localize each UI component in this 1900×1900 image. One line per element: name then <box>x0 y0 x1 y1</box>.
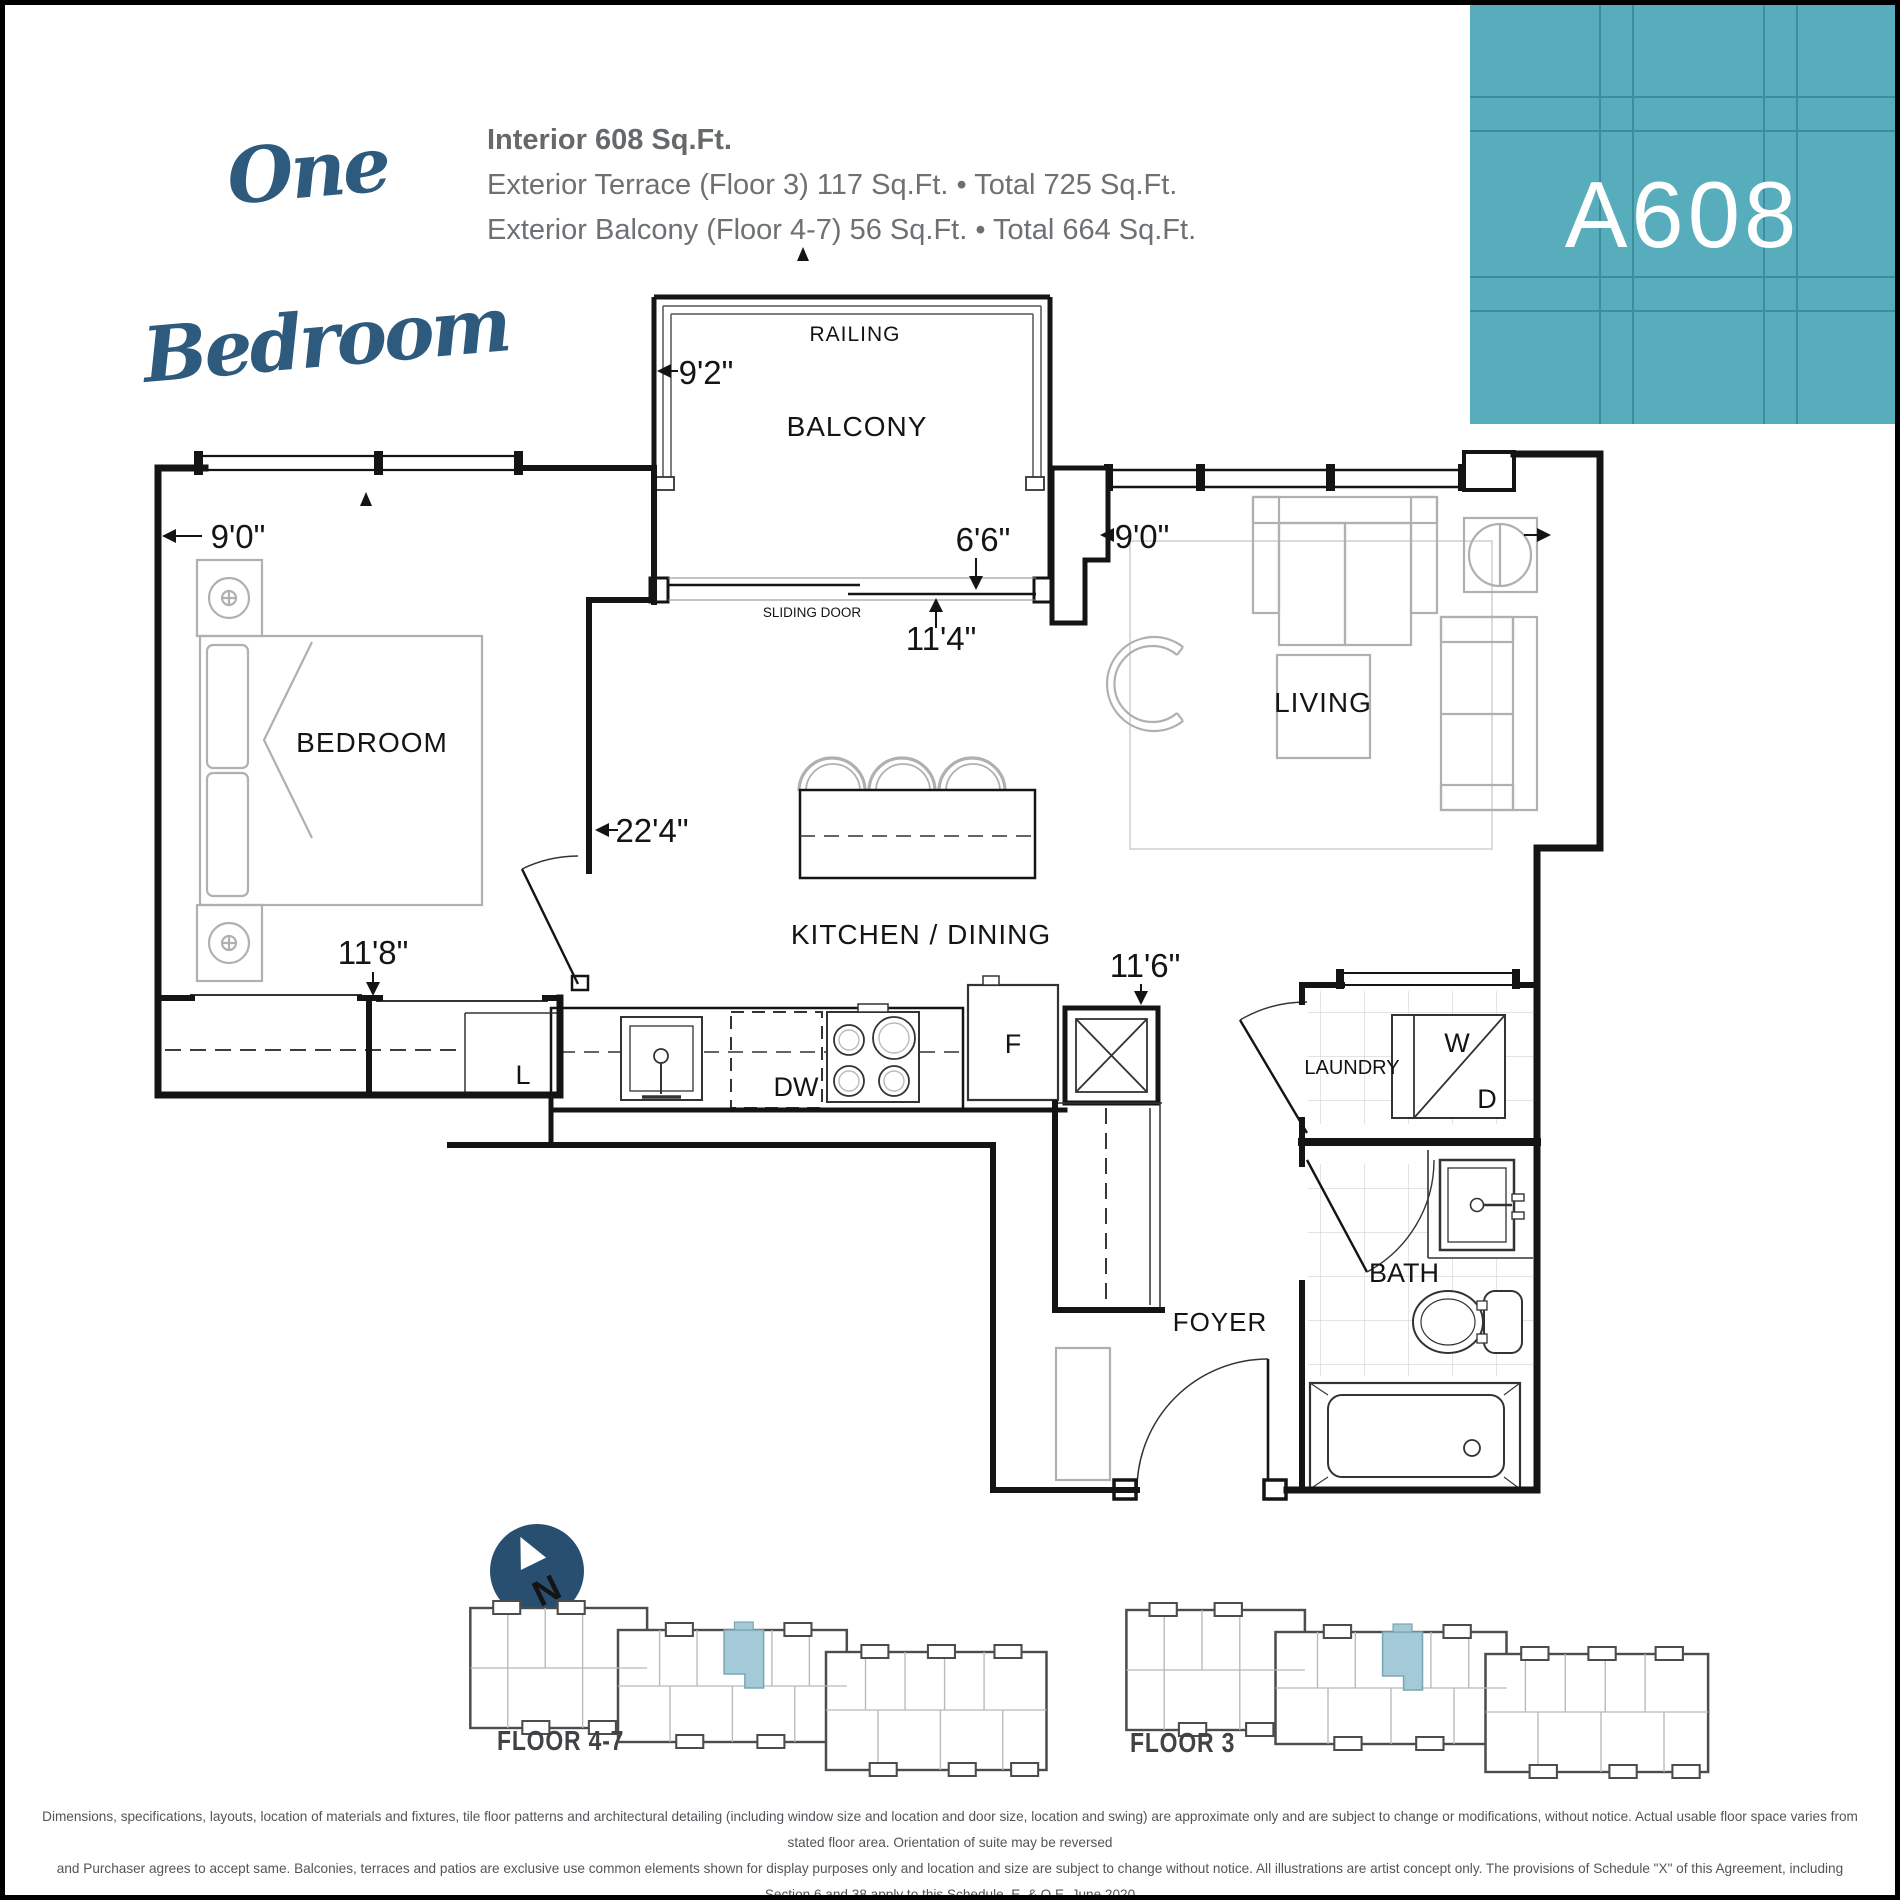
island-stools <box>799 758 1005 791</box>
dim-bedroom-depth: 11'8" <box>338 934 409 996</box>
dim-terrace-door: 6'6" <box>956 521 1011 590</box>
railing-label: RAILING <box>809 323 900 346</box>
dimensions: 9'2" 9'0" 6'6" 11'4" 9'0" 22'4" <box>162 354 1551 1005</box>
bathtub <box>1310 1383 1520 1489</box>
linen-closet-label: L <box>515 1060 530 1090</box>
dim-balcony-depth: 9'2" <box>657 354 733 391</box>
floorplan-page: One Bedroom Interior 608 Sq.Ft. Exterior… <box>0 0 1900 1900</box>
kitchen-island <box>800 790 1035 878</box>
dim-bedroom-width: 9'0" <box>162 518 265 555</box>
sliding-door-label: SLIDING DOOR <box>763 605 862 620</box>
bedroom-label: BEDROOM <box>296 727 448 758</box>
toilet <box>1413 1291 1522 1353</box>
sofa <box>1253 497 1437 523</box>
svg-text:9'0": 9'0" <box>211 518 266 555</box>
living-furniture <box>1107 497 1537 810</box>
windows <box>194 451 1520 989</box>
bedroom-closets <box>165 995 560 1095</box>
floor-3-label: FLOOR 3 <box>1130 1728 1235 1759</box>
living-label: LIVING <box>1274 687 1372 718</box>
svg-text:9'2": 9'2" <box>679 354 734 391</box>
svg-text:9'0": 9'0" <box>1115 518 1170 555</box>
dim-foyer-width: 11'6" <box>1110 947 1181 1005</box>
cooktop <box>827 1012 919 1102</box>
key-plan-floor-3: FLOOR 3 <box>1126 1603 1708 1778</box>
doors <box>522 856 1434 1499</box>
svg-text:11'4": 11'4" <box>906 620 977 657</box>
bedroom-door <box>522 856 588 990</box>
floor-plan-drawing: 9'2" 9'0" 6'6" 11'4" 9'0" 22'4" <box>0 0 1900 1900</box>
entry-door <box>1114 1359 1286 1499</box>
foyer-label: FOYER <box>1173 1307 1268 1337</box>
laundry-door <box>1240 1002 1307 1133</box>
svg-text:6'6": 6'6" <box>956 521 1011 558</box>
svg-text:22'4": 22'4" <box>615 812 688 849</box>
dishwasher-label: DW <box>774 1072 819 1102</box>
foyer-bench <box>1056 1348 1110 1480</box>
floor-4-7-label: FLOOR 4-7 <box>497 1726 624 1757</box>
armchair <box>1107 637 1183 731</box>
dim-suite-depth: 22'4" <box>595 812 689 849</box>
bedroom-furniture <box>197 560 482 981</box>
foyer-elements <box>1055 1103 1162 1480</box>
svg-text:11'6": 11'6" <box>1110 947 1181 984</box>
svg-text:11'8": 11'8" <box>338 934 409 971</box>
dryer-label: D <box>1477 1084 1497 1114</box>
laundry-label: LAUNDRY <box>1304 1057 1399 1079</box>
key-plan-floor-4-7: FLOOR 4-7 <box>470 1601 1046 1776</box>
sliding-door <box>650 578 1052 602</box>
bath-label: BATH <box>1369 1258 1439 1288</box>
balcony-label: BALCONY <box>787 411 928 442</box>
washer-label: W <box>1444 1028 1470 1058</box>
bed <box>200 636 482 905</box>
dim-kitchen-width: 11'4" <box>906 598 977 657</box>
kitchen-dining-label: KITCHEN / DINING <box>791 919 1051 950</box>
fridge-label: F <box>1005 1029 1022 1059</box>
